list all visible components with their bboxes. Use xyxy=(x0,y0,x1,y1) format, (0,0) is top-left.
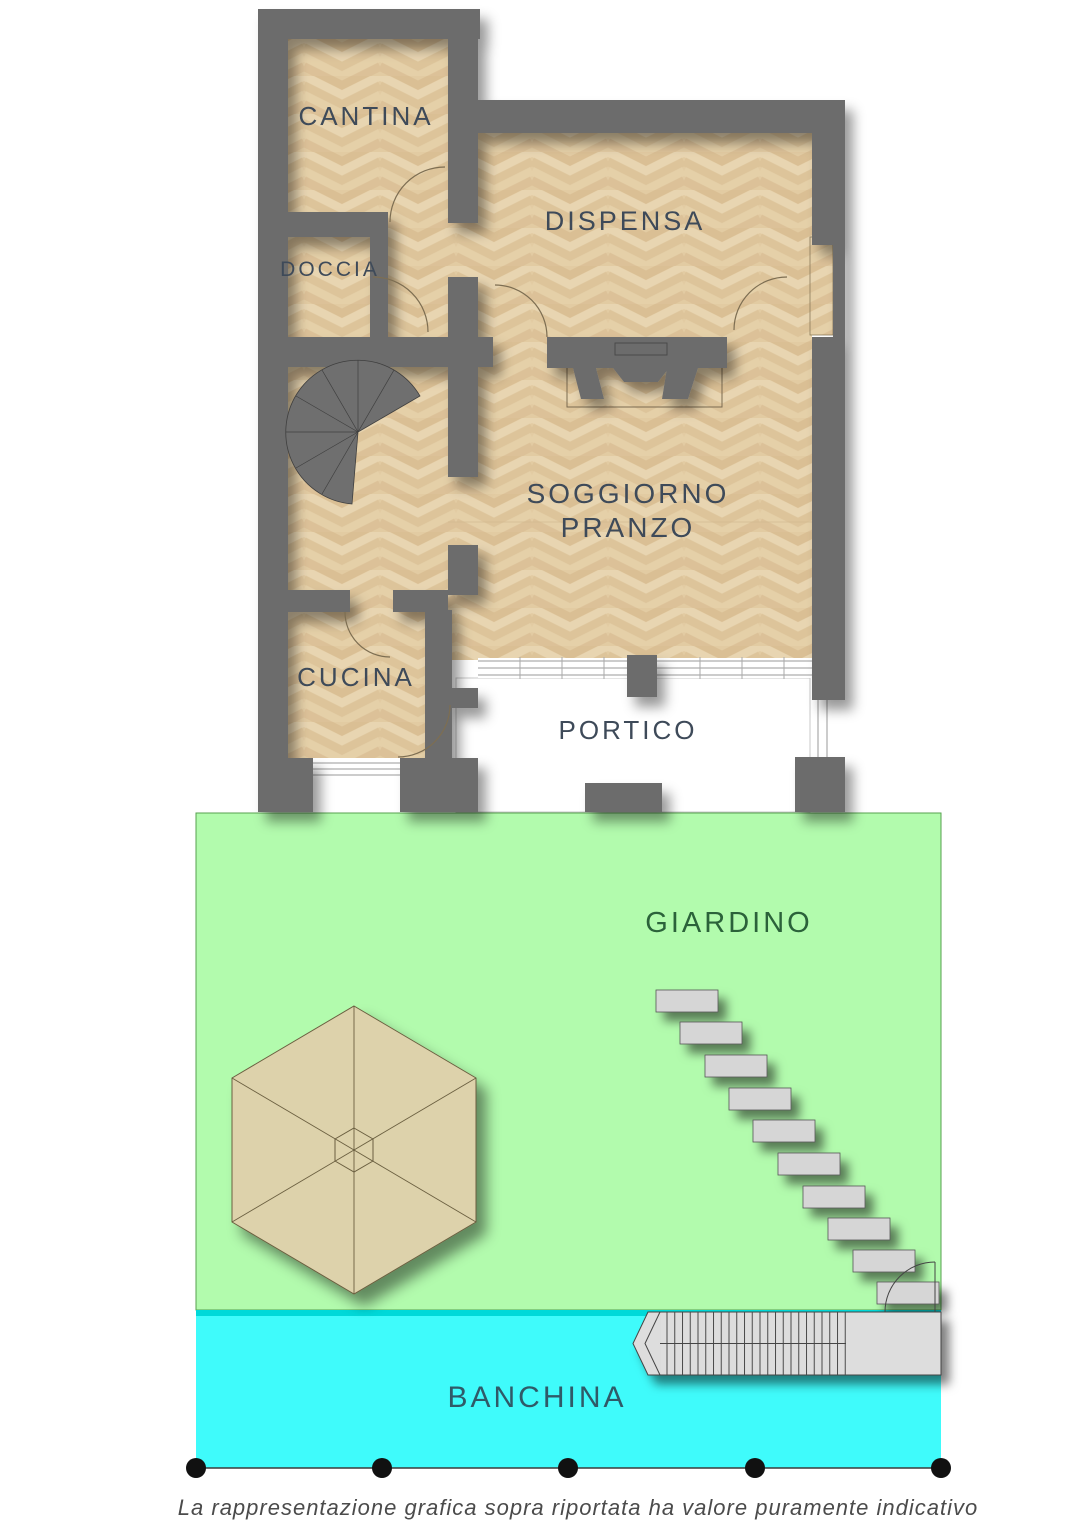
floor-plan-page: CANTINA DOCCIA DISPENSA SOGGIORNO PRANZO… xyxy=(0,0,1085,1535)
label-dispensa: DISPENSA xyxy=(545,206,706,236)
boundary-post xyxy=(186,1458,206,1478)
wall-cucina-stub xyxy=(452,688,478,708)
label-giardino: GIARDINO xyxy=(645,907,812,939)
wall-outer-left xyxy=(258,9,288,812)
wall-soggiorno-left-upper xyxy=(448,367,478,477)
wall-cucina-top-right xyxy=(393,590,448,612)
stepping-stone xyxy=(680,1022,742,1044)
wall-cucina-top-left xyxy=(288,590,350,612)
boundary-post xyxy=(931,1458,951,1478)
wall-post-center xyxy=(627,655,657,697)
stepping-stone xyxy=(729,1088,791,1110)
label-pranzo: PRANZO xyxy=(561,512,696,543)
stepping-stone xyxy=(853,1250,915,1272)
stepping-stone xyxy=(803,1186,865,1208)
wall-pillar-mid xyxy=(585,783,662,812)
wall-outer-right xyxy=(812,337,845,700)
wall-cucina-right xyxy=(425,610,452,758)
floor-dispensa xyxy=(478,133,812,367)
wall-cantina-doccia xyxy=(288,212,388,237)
floor-plan-svg: CANTINA DOCCIA DISPENSA SOGGIORNO PRANZO… xyxy=(0,0,1085,1535)
boundary-post xyxy=(558,1458,578,1478)
wall-niche-thin xyxy=(833,245,845,337)
label-cucina: CUCINA xyxy=(297,662,415,692)
label-cantina: CANTINA xyxy=(298,101,433,131)
label-soggiorno: SOGGIORNO xyxy=(527,478,730,509)
boundary-post xyxy=(745,1458,765,1478)
boundary-post xyxy=(372,1458,392,1478)
stepping-stone xyxy=(753,1120,815,1142)
cucina-window xyxy=(313,760,400,778)
wall-bottom-left xyxy=(258,758,313,812)
wall-pillar-left xyxy=(400,758,478,812)
wall-lobby-stub xyxy=(448,277,478,337)
wall-outer-right-upper xyxy=(812,133,845,245)
stepping-stone xyxy=(778,1153,840,1175)
fireplace-bar xyxy=(547,337,727,368)
label-doccia: DOCCIA xyxy=(280,258,380,281)
floor-niche xyxy=(810,235,833,335)
wall-pillar-right xyxy=(795,757,845,812)
wall-soggiorno-left-lower xyxy=(448,545,478,595)
wall-doccia-right xyxy=(370,237,388,337)
disclaimer-text: La rappresentazione grafica sopra riport… xyxy=(178,1495,978,1520)
wall-outer-top xyxy=(258,9,480,39)
portico-side-window xyxy=(818,700,827,757)
stepping-stone xyxy=(705,1055,767,1077)
label-banchina: BANCHINA xyxy=(447,1381,626,1414)
stepping-stone xyxy=(656,990,718,1012)
dock-gangway xyxy=(633,1312,941,1375)
label-portico: PORTICO xyxy=(559,715,698,745)
stepping-stone xyxy=(828,1218,890,1240)
wall-dispensa-top xyxy=(448,100,845,133)
